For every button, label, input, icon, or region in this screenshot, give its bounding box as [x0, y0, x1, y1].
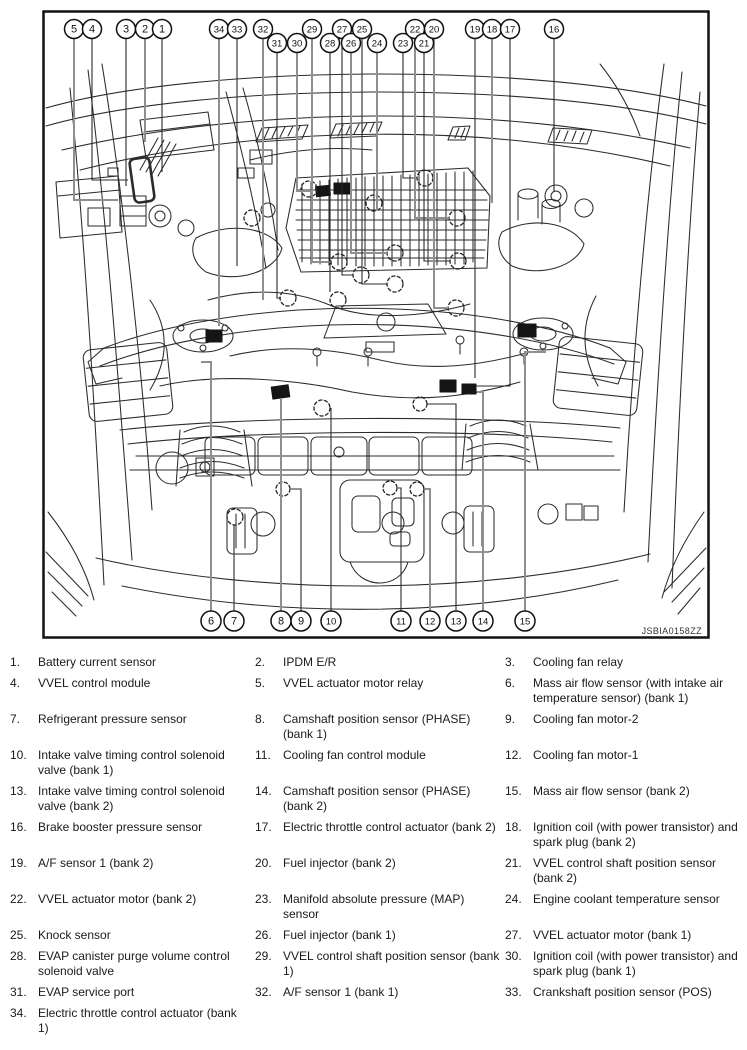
legend-item: 19.A/F sensor 1 (bank 2) [10, 856, 255, 886]
legend-item-number: 13. [10, 784, 38, 814]
legend-item: 16.Brake booster pressure sensor [10, 820, 255, 850]
legend-item: 18.Ignition coil (with power transistor)… [505, 820, 745, 850]
legend-item-label: Intake valve timing control solenoid val… [38, 784, 255, 814]
callout-13: 13 [446, 611, 466, 631]
legend-item-label: A/F sensor 1 (bank 1) [283, 985, 505, 1000]
legend-item-number: 25. [10, 928, 38, 943]
legend-item-label: VVEL actuator motor (bank 1) [533, 928, 745, 943]
callout-5: 5 [65, 20, 84, 39]
legend-item-number: 1. [10, 655, 38, 670]
svg-text:7: 7 [231, 616, 237, 628]
legend-item-label: Ignition coil (with power transistor) an… [533, 820, 745, 850]
svg-text:2: 2 [142, 24, 148, 36]
legend-item-label: Camshaft position sensor (PHASE) (bank 2… [283, 784, 505, 814]
legend-item-number: 10. [10, 748, 38, 778]
legend-item: 22.VVEL actuator motor (bank 2) [10, 892, 255, 922]
legend-item: 1.Battery current sensor [10, 655, 255, 670]
legend-item: 14.Camshaft position sensor (PHASE) (ban… [255, 784, 505, 814]
legend-item: 11.Cooling fan control module [255, 748, 505, 778]
legend-item-number: 17. [255, 820, 283, 850]
legend-item-number: 24. [505, 892, 533, 922]
svg-text:4: 4 [89, 24, 95, 36]
legend-item: 9.Cooling fan motor-2 [505, 712, 745, 742]
callout-4: 4 [83, 20, 102, 39]
callout-6: 6 [201, 611, 221, 631]
legend-item-label: VVEL actuator motor relay [283, 676, 505, 706]
legend-item-number: 14. [255, 784, 283, 814]
legend-item: 12.Cooling fan motor-1 [505, 748, 745, 778]
legend-item-label: EVAP service port [38, 985, 255, 1000]
legend-item-number: 16. [10, 820, 38, 850]
legend-item-label: Mass air flow sensor (bank 2) [533, 784, 745, 814]
svg-text:33: 33 [232, 25, 243, 36]
legend-item-label: Ignition coil (with power transistor) an… [533, 949, 745, 979]
legend-item-number: 27. [505, 928, 533, 943]
legend-item-number: 34. [10, 1006, 38, 1036]
callout-32: 32 [254, 20, 273, 39]
svg-text:25: 25 [357, 25, 368, 36]
callout-8: 8 [271, 611, 291, 631]
svg-text:8: 8 [278, 616, 284, 628]
legend-item-label: Electric throttle control actuator (bank… [38, 1006, 255, 1036]
legend-item-label: Fuel injector (bank 2) [283, 856, 505, 886]
svg-text:13: 13 [451, 617, 462, 628]
legend-item-label: Camshaft position sensor (PHASE) (bank 1… [283, 712, 505, 742]
svg-text:16: 16 [549, 25, 560, 36]
legend-item: 34.Electric throttle control actuator (b… [10, 1006, 255, 1036]
legend-item-number: 6. [505, 676, 533, 706]
svg-text:23: 23 [398, 39, 409, 50]
legend-item-label: Refrigerant pressure sensor [38, 712, 255, 742]
engine-diagram: 5432134333231302928272625242322212019181… [0, 0, 747, 650]
legend-item: 31.EVAP service port [10, 985, 255, 1000]
legend-item-label: Cooling fan relay [533, 655, 745, 670]
callout-15: 15 [515, 611, 535, 631]
figure-code: JSBIA0158ZZ [642, 626, 703, 636]
svg-text:19: 19 [470, 25, 481, 36]
callout-11: 11 [391, 611, 411, 631]
legend-item: 7.Refrigerant pressure sensor [10, 712, 255, 742]
legend-item: 21.VVEL control shaft position sensor (b… [505, 856, 745, 886]
legend-item-number: 21. [505, 856, 533, 886]
legend-item-label: Mass air flow sensor (with intake air te… [533, 676, 745, 706]
callout-18: 18 [483, 20, 502, 39]
legend-item: 8.Camshaft position sensor (PHASE) (bank… [255, 712, 505, 742]
svg-text:31: 31 [272, 39, 283, 50]
legend-item-number: 2. [255, 655, 283, 670]
svg-text:22: 22 [410, 25, 421, 36]
callout-19: 19 [466, 20, 485, 39]
legend-item: 33.Crankshaft position sensor (POS) [505, 985, 745, 1000]
legend-item: 23.Manifold absolute pressure (MAP) sens… [255, 892, 505, 922]
svg-text:17: 17 [505, 25, 516, 36]
legend-item-number: 19. [10, 856, 38, 886]
engine-compartment-figure: 5432134333231302928272625242322212019181… [0, 0, 747, 650]
callout-20: 20 [425, 20, 444, 39]
legend-item: 24.Engine coolant temperature sensor [505, 892, 745, 922]
svg-text:15: 15 [520, 617, 531, 628]
legend-item-number: 12. [505, 748, 533, 778]
callout-29: 29 [303, 20, 322, 39]
legend-item-number: 30. [505, 949, 533, 979]
svg-text:20: 20 [429, 25, 440, 36]
svg-text:6: 6 [208, 616, 214, 628]
legend-item-number: 32. [255, 985, 283, 1000]
legend-item: 10.Intake valve timing control solenoid … [10, 748, 255, 778]
svg-text:5: 5 [71, 24, 77, 36]
svg-text:9: 9 [298, 616, 304, 628]
legend-item-number: 4. [10, 676, 38, 706]
callout-30: 30 [288, 34, 307, 53]
legend-item-number: 31. [10, 985, 38, 1000]
legend-item-label: VVEL actuator motor (bank 2) [38, 892, 255, 922]
legend-item-label: Electric throttle control actuator (bank… [283, 820, 505, 850]
legend-item: 5.VVEL actuator motor relay [255, 676, 505, 706]
svg-text:29: 29 [307, 25, 318, 36]
legend-item-label: VVEL control shaft position sensor (bank… [533, 856, 745, 886]
legend-item-number: 26. [255, 928, 283, 943]
svg-text:26: 26 [346, 39, 357, 50]
legend-item-number: 29. [255, 949, 283, 979]
legend-item: 4.VVEL control module [10, 676, 255, 706]
callout-2: 2 [136, 20, 155, 39]
callout-3: 3 [117, 20, 136, 39]
legend-item-number: 9. [505, 712, 533, 742]
legend-item-number: 18. [505, 820, 533, 850]
component-legend: 1.Battery current sensor2.IPDM E/R3.Cool… [0, 650, 747, 1036]
legend-item: 17.Electric throttle control actuator (b… [255, 820, 505, 850]
legend-item-number: 33. [505, 985, 533, 1000]
legend-item: 13.Intake valve timing control solenoid … [10, 784, 255, 814]
legend-item: 30.Ignition coil (with power transistor)… [505, 949, 745, 979]
legend-item: 25.Knock sensor [10, 928, 255, 943]
legend-item-number: 20. [255, 856, 283, 886]
legend-item-label: Fuel injector (bank 1) [283, 928, 505, 943]
legend-item-label: Knock sensor [38, 928, 255, 943]
legend-item-label: Crankshaft position sensor (POS) [533, 985, 745, 1000]
legend-item-number: 22. [10, 892, 38, 922]
callout-12: 12 [420, 611, 440, 631]
legend-item: 3.Cooling fan relay [505, 655, 745, 670]
legend-item: 20.Fuel injector (bank 2) [255, 856, 505, 886]
legend-item-label: A/F sensor 1 (bank 2) [38, 856, 255, 886]
legend-item-label: Cooling fan motor-2 [533, 712, 745, 742]
legend-item-label: Intake valve timing control solenoid val… [38, 748, 255, 778]
legend-item-number: 8. [255, 712, 283, 742]
callout-1: 1 [153, 20, 172, 39]
legend-item: 27.VVEL actuator motor (bank 1) [505, 928, 745, 943]
svg-text:1: 1 [159, 24, 165, 36]
legend-item: 29.VVEL control shaft position sensor (b… [255, 949, 505, 979]
legend-item-number: 7. [10, 712, 38, 742]
svg-text:10: 10 [326, 617, 337, 628]
legend-item-label: IPDM E/R [283, 655, 505, 670]
callout-25: 25 [353, 20, 372, 39]
svg-text:11: 11 [396, 617, 406, 628]
legend-item-number: 28. [10, 949, 38, 979]
legend-item-label: Manifold absolute pressure (MAP) sensor [283, 892, 505, 922]
svg-text:30: 30 [292, 39, 303, 50]
legend-item-label: EVAP canister purge volume control solen… [38, 949, 255, 979]
callout-34: 34 [210, 20, 229, 39]
svg-text:3: 3 [123, 24, 129, 36]
legend-item: 6.Mass air flow sensor (with intake air … [505, 676, 745, 706]
legend-item-number: 3. [505, 655, 533, 670]
svg-text:18: 18 [487, 25, 498, 36]
legend-item-number: 11. [255, 748, 283, 778]
callout-10: 10 [321, 611, 341, 631]
callout-24: 24 [368, 34, 387, 53]
legend-item-label: Engine coolant temperature sensor [533, 892, 745, 922]
callout-33: 33 [228, 20, 247, 39]
svg-text:27: 27 [337, 25, 348, 36]
legend-item-label: VVEL control shaft position sensor (bank… [283, 949, 505, 979]
legend-item-number: 15. [505, 784, 533, 814]
callout-31: 31 [268, 34, 287, 53]
svg-text:24: 24 [372, 39, 383, 50]
legend-item: 32.A/F sensor 1 (bank 1) [255, 985, 505, 1000]
legend-item: 28.EVAP canister purge volume control so… [10, 949, 255, 979]
svg-text:14: 14 [478, 617, 489, 628]
callout-7: 7 [224, 611, 244, 631]
legend-item-label: Brake booster pressure sensor [38, 820, 255, 850]
svg-text:28: 28 [325, 39, 336, 50]
callout-16: 16 [545, 20, 564, 39]
callout-9: 9 [291, 611, 311, 631]
legend-item: 26.Fuel injector (bank 1) [255, 928, 505, 943]
legend-item: 15.Mass air flow sensor (bank 2) [505, 784, 745, 814]
legend-item-number: 23. [255, 892, 283, 922]
svg-text:21: 21 [419, 39, 430, 50]
legend-item-number: 5. [255, 676, 283, 706]
svg-text:34: 34 [214, 25, 225, 36]
legend-item-label: Cooling fan motor-1 [533, 748, 745, 778]
legend-item-label: VVEL control module [38, 676, 255, 706]
callout-17: 17 [501, 20, 520, 39]
legend-item-label: Cooling fan control module [283, 748, 505, 778]
svg-text:32: 32 [258, 25, 269, 36]
legend-item-label: Battery current sensor [38, 655, 255, 670]
callout-14: 14 [473, 611, 493, 631]
svg-text:12: 12 [425, 617, 436, 628]
legend-item: 2.IPDM E/R [255, 655, 505, 670]
